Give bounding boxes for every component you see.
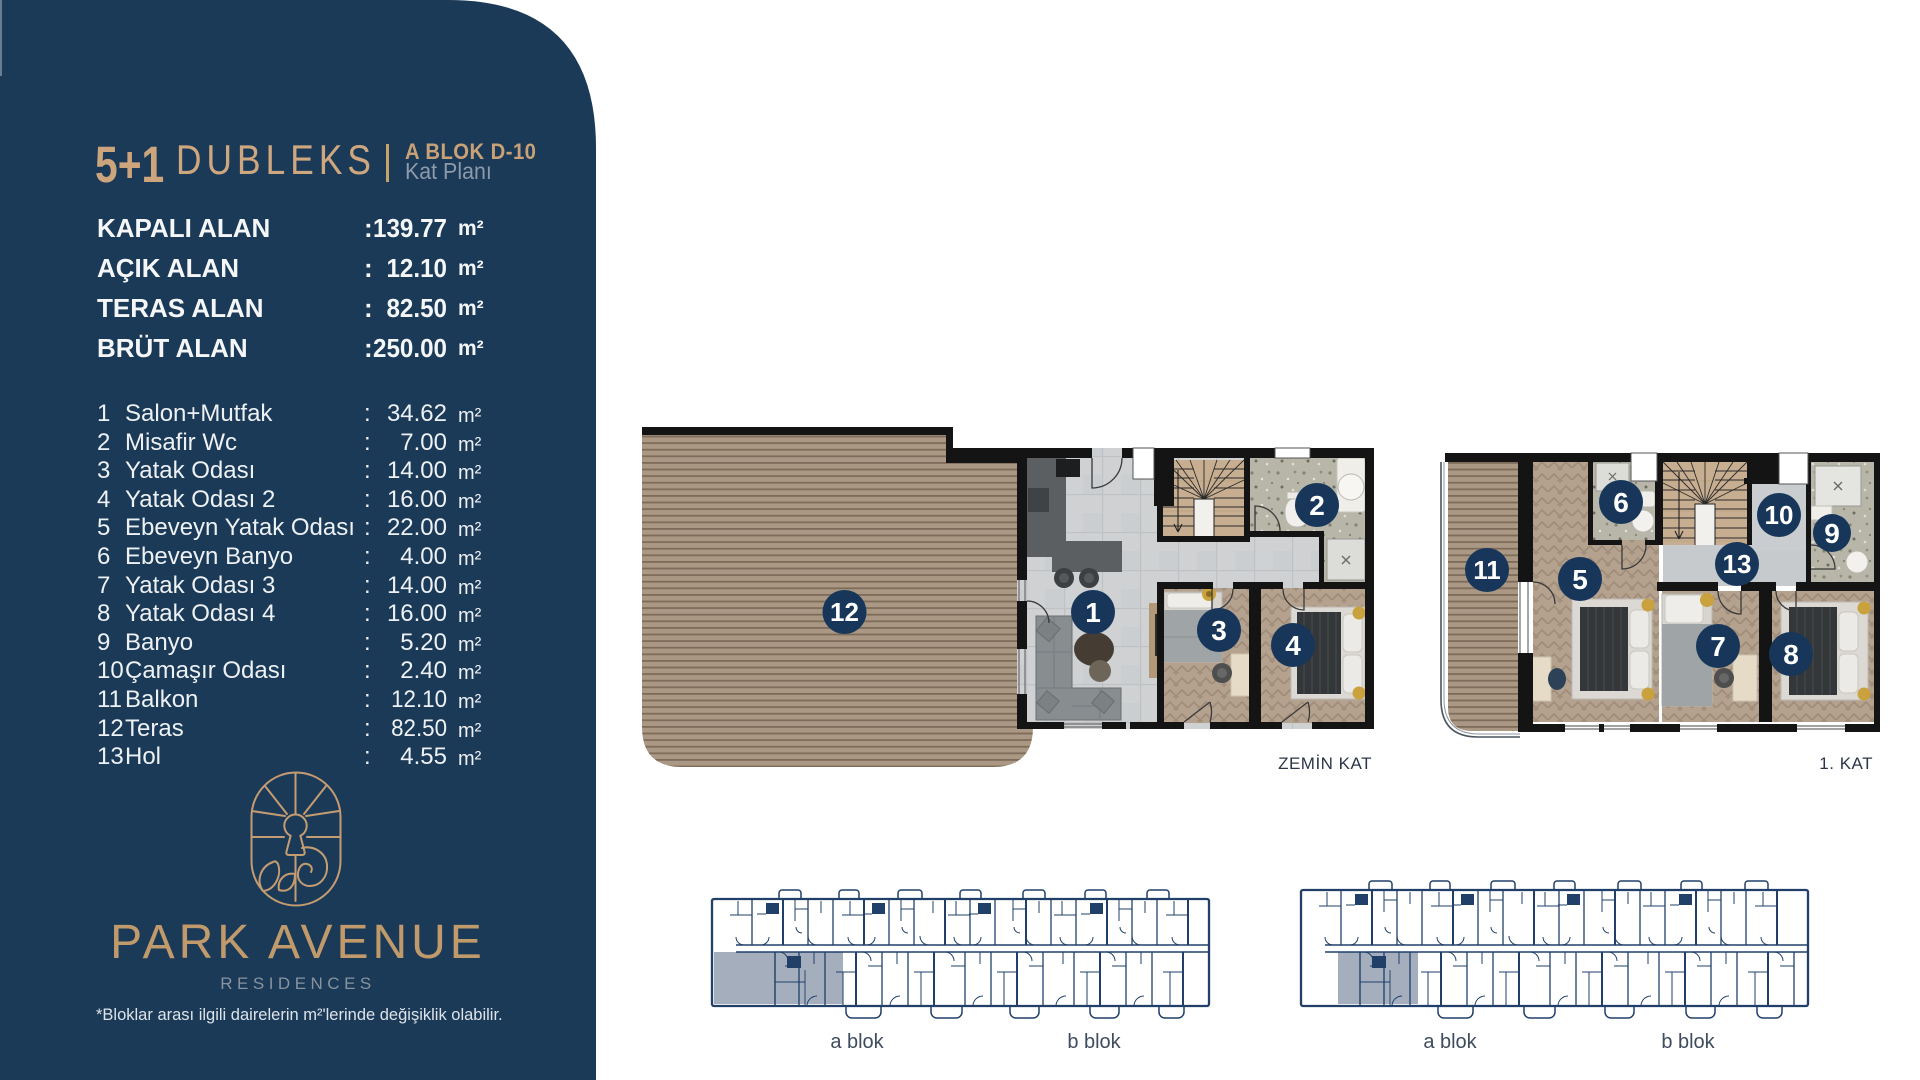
svg-text:10: 10 [1765, 500, 1794, 530]
svg-text:5: 5 [1572, 564, 1588, 595]
svg-text:9: 9 [1824, 518, 1840, 549]
svg-text:7: 7 [1710, 631, 1726, 662]
svg-text:1: 1 [1085, 597, 1101, 628]
svg-text:4: 4 [1285, 630, 1301, 661]
svg-text:11: 11 [1473, 555, 1501, 585]
svg-text:13: 13 [1723, 549, 1752, 579]
svg-text:3: 3 [1211, 615, 1227, 646]
svg-text:6: 6 [1613, 487, 1629, 518]
svg-text:12: 12 [830, 597, 859, 627]
svg-text:8: 8 [1783, 639, 1799, 670]
svg-text:2: 2 [1309, 490, 1325, 521]
